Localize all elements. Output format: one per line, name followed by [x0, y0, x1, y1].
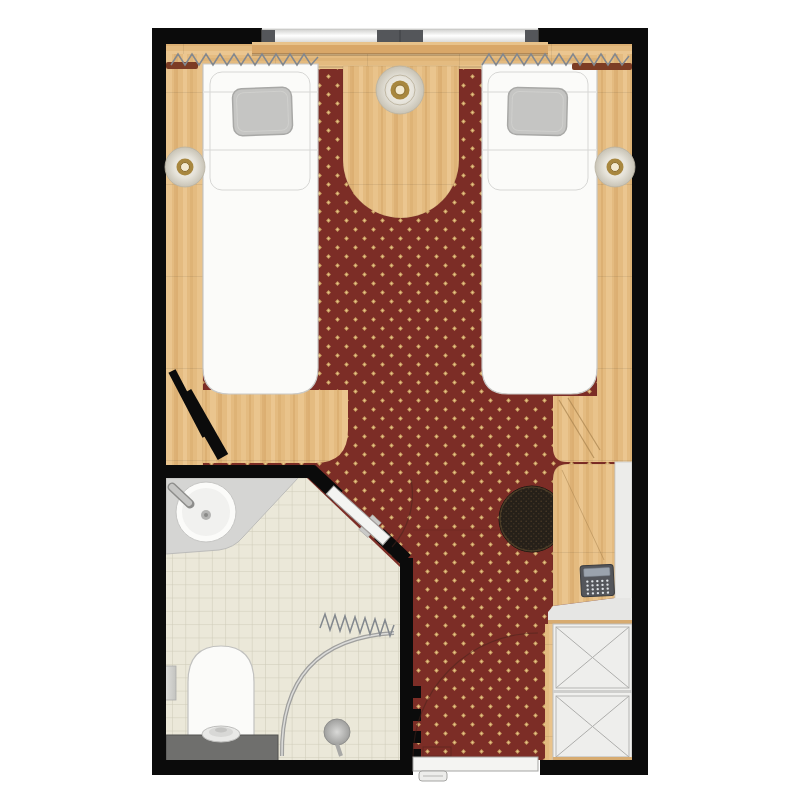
floor-plan-page	[0, 0, 800, 800]
wall-right	[632, 28, 648, 775]
wall-bottom-left	[152, 760, 413, 775]
pillow-left	[232, 87, 293, 136]
curtain-fabric-left	[166, 62, 198, 69]
shelf-wood-edge	[548, 620, 632, 624]
wall-bottom-right	[540, 760, 648, 775]
entry-door-leaf	[413, 757, 538, 771]
wall-lamp-right	[595, 147, 635, 187]
bathroom-wall-top	[152, 465, 314, 478]
phone-display	[584, 567, 610, 576]
shower-head	[324, 719, 350, 745]
bed-left	[203, 64, 318, 394]
wood-column-right	[597, 54, 632, 462]
flush-cap-top	[215, 728, 227, 733]
wall-top-right	[538, 28, 648, 44]
wall-lamp-left	[165, 147, 205, 187]
wardrobe-panel-top	[556, 627, 629, 688]
bathroom-wall-right	[400, 558, 413, 760]
window	[262, 29, 538, 44]
floor-plan	[0, 0, 800, 800]
wall-left	[152, 28, 166, 775]
ceiling-lamp	[376, 66, 424, 114]
luggage-rack	[553, 396, 600, 462]
pillow-right	[507, 87, 567, 136]
telephone	[580, 564, 615, 597]
wardrobe-divider	[553, 690, 632, 693]
window-mullion	[262, 30, 275, 42]
bed-right	[482, 64, 597, 394]
wardrobe-panel-bottom	[556, 696, 629, 757]
desk-back-shelf	[615, 462, 632, 608]
window-mullion	[525, 30, 538, 42]
wardrobe	[545, 624, 632, 761]
wall-top-left	[152, 28, 262, 44]
wardrobe-side-wood	[545, 624, 553, 760]
drain-center	[204, 513, 208, 517]
